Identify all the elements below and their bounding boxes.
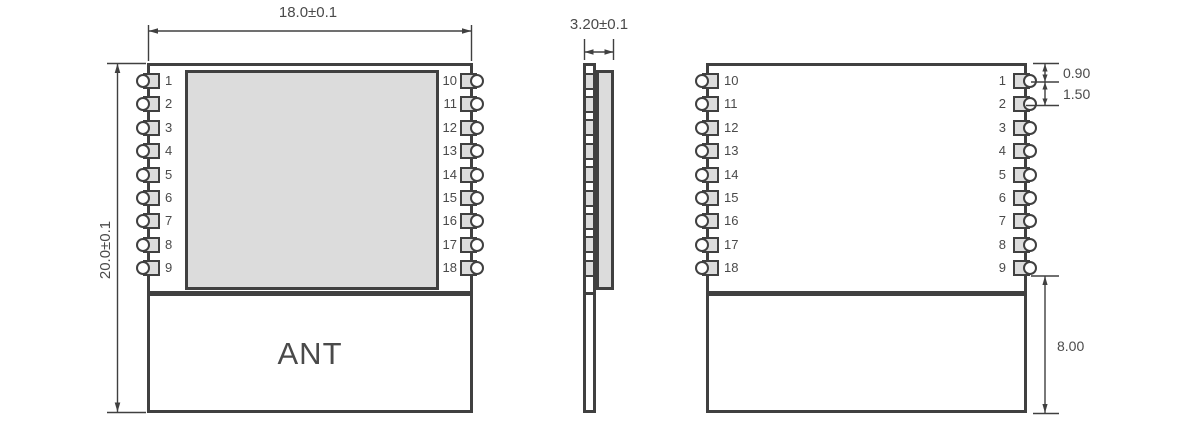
pin-number-label: 2 [165,96,193,112]
pin-number-label: 18 [429,260,457,276]
side-pad-segment [586,190,593,207]
pin-number-label: 6 [978,190,1006,206]
castellation-notch [1023,261,1037,275]
castellation-notch [136,238,150,252]
castellation-notch [470,261,484,275]
castellation-notch [136,74,150,88]
pin-pad-12 [460,120,477,136]
pin-number-label: 11 [724,96,752,112]
pin-number-label: 17 [724,237,752,253]
dim-front-width-label: 18.0±0.1 [228,4,388,22]
castellation-notch [1023,74,1037,88]
side-pad-segment [586,73,593,90]
castellation-notch [695,121,709,135]
pin-pad-2 [1013,96,1030,112]
pin-pad-13 [460,143,477,159]
pin-number-label: 4 [978,143,1006,159]
pin-number-label: 16 [724,213,752,229]
castellation-notch [136,261,150,275]
pin-number-label: 11 [429,96,457,112]
pin-number-label: 2 [978,96,1006,112]
pin-number-label: 7 [165,213,193,229]
pin-number-label: 6 [165,190,193,206]
pin-pad-17 [702,237,719,253]
pin-number-label: 4 [165,143,193,159]
dim-pin-top-offset-label: 0.90 [1063,64,1090,82]
castellation-notch [1023,168,1037,182]
pin-pad-4 [1013,143,1030,159]
pin-number-label: 14 [429,167,457,183]
pin-number-label: 10 [724,73,752,89]
side-pad-segment [586,213,593,230]
pin-number-label: 5 [978,167,1006,183]
pin-pad-14 [702,167,719,183]
side-pad-segment [586,260,593,277]
castellation-notch [1023,214,1037,228]
pin-number-label: 16 [429,213,457,229]
pin-pad-17 [460,237,477,253]
pin-number-label: 14 [724,167,752,183]
pin-pad-6 [143,190,160,206]
pin-number-label: 17 [429,237,457,253]
pin-pad-16 [460,213,477,229]
pin-number-label: 15 [724,190,752,206]
front-view-shield-area [185,70,439,290]
dim-front-height-label: 20.0±0.1 [97,185,115,315]
pin-pad-7 [143,213,160,229]
pin-pad-6 [1013,190,1030,206]
pin-pad-9 [1013,260,1030,276]
castellation-notch [1023,238,1037,252]
castellation-notch [136,168,150,182]
pin-pad-10 [702,73,719,89]
pin-pad-1 [143,73,160,89]
pin-number-label: 3 [165,120,193,136]
pin-pad-16 [702,213,719,229]
castellation-notch [695,144,709,158]
pin-number-label: 1 [165,73,193,89]
castellation-notch [695,168,709,182]
pin-pad-7 [1013,213,1030,229]
side-view-antenna-divider [583,292,596,295]
pin-number-label: 3 [978,120,1006,136]
mechanical-drawing-canvas: ANT 123456789 101112131415161718 1011121… [0,0,1200,436]
pin-pad-10 [460,73,477,89]
pin-pad-18 [460,260,477,276]
pin-pad-15 [702,190,719,206]
pin-pad-15 [460,190,477,206]
side-view-shield [596,70,614,290]
dim-antenna-height-label: 8.00 [1057,337,1084,355]
pin-pad-14 [460,167,477,183]
pin-number-label: 12 [429,120,457,136]
castellation-notch [695,214,709,228]
castellation-notch [136,97,150,111]
pin-number-label: 12 [724,120,752,136]
pin-pad-9 [143,260,160,276]
pin-number-label: 8 [978,237,1006,253]
castellation-notch [695,261,709,275]
castellation-notch [470,214,484,228]
castellation-notch [695,74,709,88]
castellation-notch [695,191,709,205]
pin-number-label: 15 [429,190,457,206]
pin-number-label: 5 [165,167,193,183]
castellation-notch [695,97,709,111]
pin-pad-3 [1013,120,1030,136]
castellation-notch [136,121,150,135]
pin-number-label: 13 [429,143,457,159]
castellation-notch [136,191,150,205]
back-view-antenna-area [706,293,1027,413]
castellation-notch [1023,191,1037,205]
castellation-notch [1023,97,1037,111]
pin-pad-8 [1013,237,1030,253]
pin-number-label: 9 [978,260,1006,276]
castellation-notch [470,121,484,135]
castellation-notch [470,191,484,205]
pin-pad-11 [460,96,477,112]
pin-number-label: 9 [165,260,193,276]
castellation-notch [1023,144,1037,158]
castellation-notch [470,144,484,158]
pin-pad-12 [702,120,719,136]
castellation-notch [136,144,150,158]
pin-pad-8 [143,237,160,253]
pin-pad-5 [1013,167,1030,183]
pin-number-label: 18 [724,260,752,276]
side-pad-segment [586,119,593,136]
pin-pad-18 [702,260,719,276]
castellation-notch [136,214,150,228]
castellation-notch [470,168,484,182]
antenna-label: ANT [278,338,343,369]
pin-number-label: 7 [978,213,1006,229]
pin-pad-2 [143,96,160,112]
castellation-notch [470,97,484,111]
dim-side-thickness-label: 3.20±0.1 [519,16,679,34]
pin-number-label: 1 [978,73,1006,89]
castellation-notch [470,74,484,88]
castellation-notch [695,238,709,252]
side-pad-segment [586,96,593,113]
pin-pad-4 [143,143,160,159]
side-pad-segment [586,143,593,160]
castellation-notch [470,238,484,252]
pin-number-label: 13 [724,143,752,159]
pin-pad-3 [143,120,160,136]
pin-pad-13 [702,143,719,159]
pin-number-label: 10 [429,73,457,89]
pin-number-label: 8 [165,237,193,253]
pin-pad-1 [1013,73,1030,89]
side-pad-segment [586,236,593,253]
castellation-notch [1023,121,1037,135]
pin-pad-11 [702,96,719,112]
dim-pin-pitch-label: 1.50 [1063,85,1090,103]
front-view-antenna-area: ANT [147,293,473,413]
side-pad-segment [586,166,593,183]
pin-pad-5 [143,167,160,183]
